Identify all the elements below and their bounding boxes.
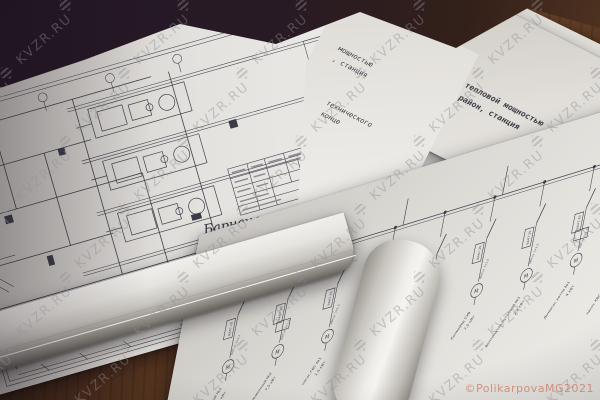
feeder-label: насос циркуляционный №1 [184,387,223,400]
motor-mark: М [523,273,529,281]
feeder-label: Вентилятор дутьевой №1 [484,295,521,348]
feeder-label: насос ХВС подпиточный [586,265,600,315]
watermark: KVZR.RU [54,0,134,16]
feeder: ВА47-29ВВГнг 3х1,5МКонвейер СУВ7,5 кВт [450,193,503,341]
kvzr-logo-icon [54,0,75,16]
feeder-label: Дымосос котла №1 [543,280,571,320]
watermark: KVZR.RU [0,0,16,16]
feeder: ВА47-29ВВГнг 3х1,5МВентилятор дутьевой №… [484,178,552,349]
motor-mark: М [225,364,231,372]
motor-mark: М [275,349,281,357]
fragment-lower-text: технического конце [318,97,374,141]
motor-mark: М [573,258,579,266]
feeder: ВА47-29ВВГнг 3х1,5МДымосос котла №14 кВт [543,163,600,321]
photo-of-blueprints: Российская Федерация Общество с Ограниче… [0,0,600,400]
motor-mark: М [324,334,330,342]
motor-mark: М [474,288,480,296]
photo-credit: ©PolikarpovaMG2021 [465,382,595,395]
fragment-upper-text: мощностью , станция [330,43,375,82]
